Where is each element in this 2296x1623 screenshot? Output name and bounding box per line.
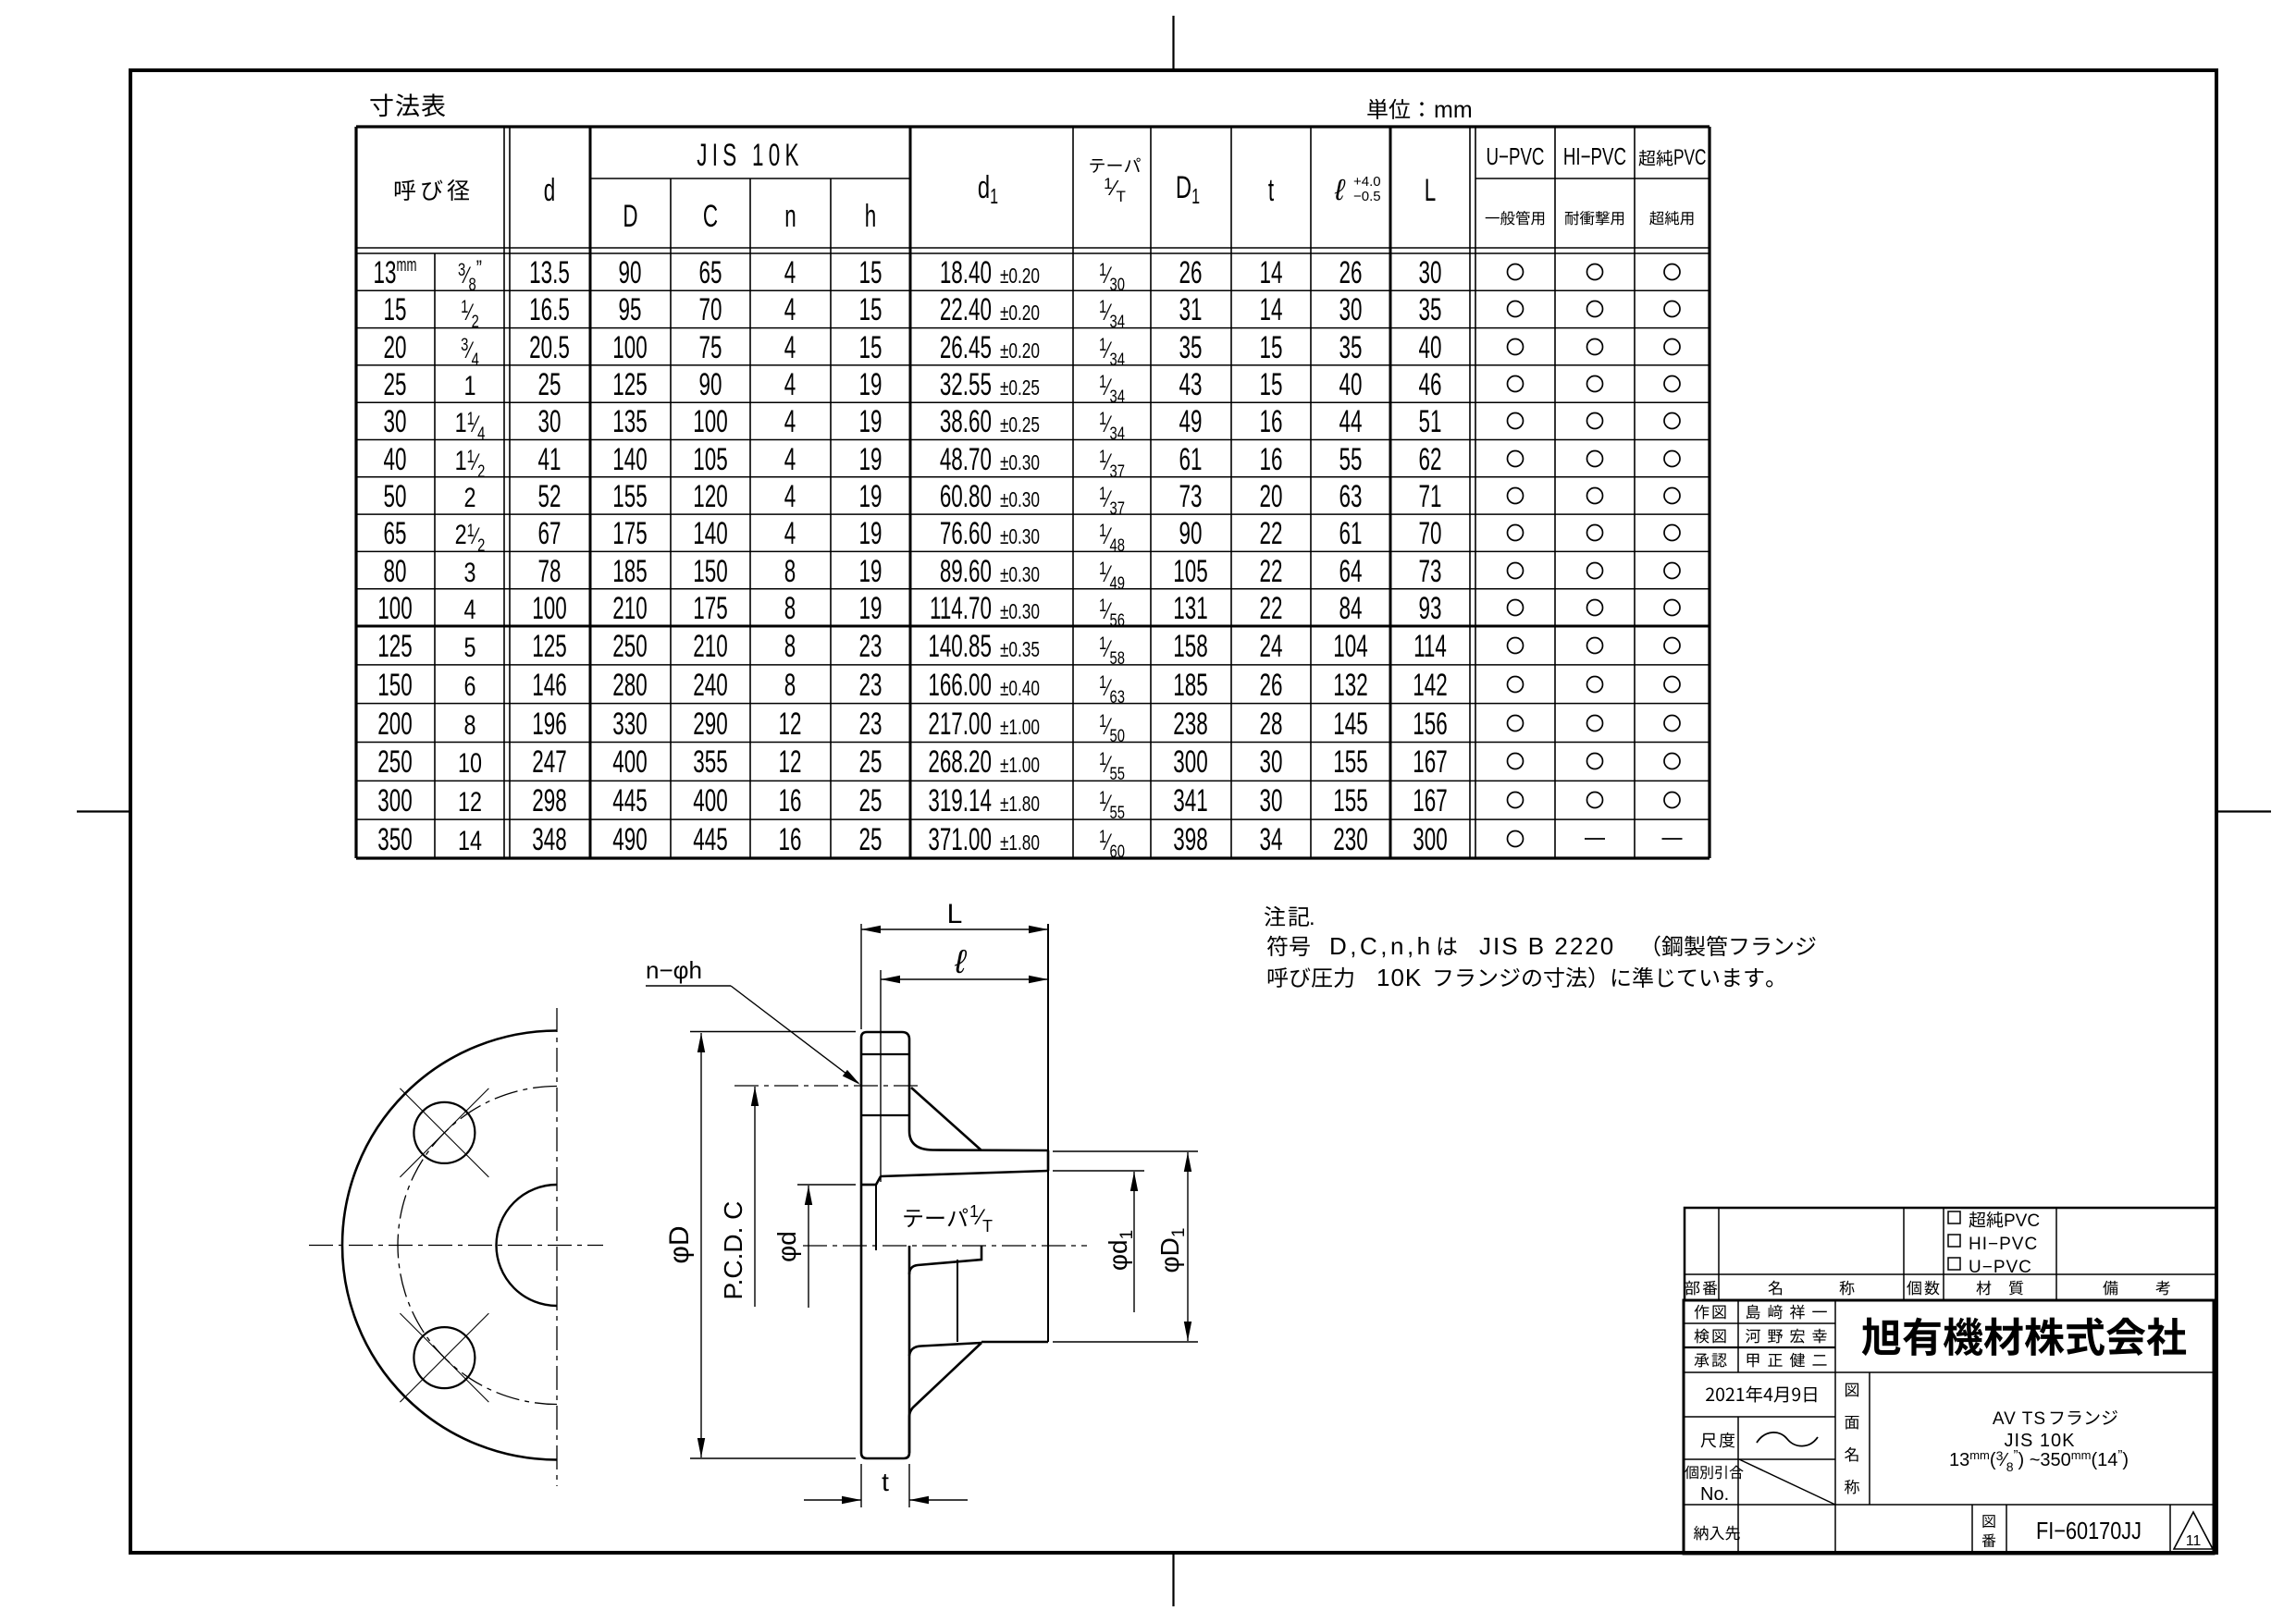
svg-text:90: 90 — [619, 255, 642, 290]
svg-text:25: 25 — [859, 783, 883, 818]
svg-text:35: 35 — [1339, 330, 1363, 365]
svg-text:FI−60170JJ: FI−60170JJ — [2036, 1517, 2142, 1544]
svg-text:±0.20: ±0.20 — [1000, 340, 1040, 363]
svg-text:70: 70 — [1419, 516, 1442, 551]
svg-text:ℓ: ℓ — [1334, 173, 1346, 206]
svg-text:±1.80: ±1.80 — [1000, 832, 1040, 855]
svg-text:±0.20: ±0.20 — [1000, 265, 1040, 289]
svg-text:280: 280 — [612, 668, 647, 703]
svg-text:±0.30: ±0.30 — [1000, 526, 1040, 549]
svg-text:15: 15 — [1260, 330, 1283, 365]
svg-text:230: 230 — [1333, 822, 1367, 857]
svg-text:22: 22 — [1260, 516, 1283, 551]
svg-text:±0.25: ±0.25 — [1000, 414, 1040, 437]
svg-text:247: 247 — [532, 744, 566, 780]
svg-text:1⁄48: 1⁄48 — [1099, 521, 1125, 555]
svg-text:40: 40 — [384, 442, 407, 477]
svg-text:No.: No. — [1700, 1484, 1729, 1505]
svg-text:4: 4 — [784, 516, 796, 551]
svg-text:8: 8 — [784, 591, 796, 626]
svg-text:3⁄8”: 3⁄8” — [458, 256, 482, 295]
svg-text:80: 80 — [384, 554, 407, 589]
svg-text:20.5: 20.5 — [529, 330, 570, 365]
svg-text:4: 4 — [784, 330, 796, 365]
svg-text:±0.20: ±0.20 — [1000, 302, 1040, 326]
svg-text:16: 16 — [778, 822, 801, 857]
svg-text:76.60: 76.60 — [940, 516, 992, 551]
svg-text:d: d — [544, 173, 555, 208]
svg-text:445: 445 — [693, 822, 727, 857]
svg-text:20: 20 — [1260, 479, 1283, 514]
svg-text:114: 114 — [1413, 629, 1447, 664]
svg-text:34: 34 — [1260, 822, 1283, 857]
svg-text:12: 12 — [778, 744, 801, 780]
svg-text:15: 15 — [859, 330, 883, 365]
svg-text:mm: mm — [1434, 97, 1473, 123]
svg-text:1⁄60: 1⁄60 — [1099, 827, 1125, 861]
svg-text:185: 185 — [1173, 668, 1207, 703]
svg-text:30: 30 — [538, 404, 562, 439]
svg-text:11⁄2: 11⁄2 — [455, 445, 486, 481]
svg-text:89.60: 89.60 — [940, 554, 992, 589]
svg-text:4: 4 — [464, 594, 476, 624]
svg-text:61: 61 — [1179, 442, 1203, 477]
svg-text:1⁄34: 1⁄34 — [1099, 297, 1125, 331]
svg-text:t: t — [882, 1468, 889, 1496]
svg-text:71: 71 — [1419, 479, 1442, 514]
svg-text:290: 290 — [693, 707, 727, 742]
svg-text:73: 73 — [1419, 554, 1442, 589]
svg-text:490: 490 — [612, 822, 647, 857]
svg-text:341: 341 — [1173, 783, 1207, 818]
svg-text:.: . — [1309, 905, 1315, 930]
svg-text:140: 140 — [612, 442, 647, 477]
svg-text:h: h — [865, 199, 876, 234]
svg-text:HI−PVC: HI−PVC — [1563, 142, 1626, 170]
svg-text:146: 146 — [532, 668, 566, 703]
svg-text:D,C,n,h: D,C,n,h — [1329, 932, 1434, 960]
svg-text:U−PVC: U−PVC — [1487, 142, 1545, 170]
svg-text:166.00: 166.00 — [928, 668, 992, 703]
svg-text:φD: φD — [664, 1225, 695, 1263]
svg-text:65: 65 — [698, 255, 722, 290]
svg-text:60.80: 60.80 — [940, 479, 992, 514]
svg-text:4: 4 — [784, 367, 796, 402]
svg-text:11: 11 — [2186, 1533, 2202, 1549]
svg-text:1: 1 — [464, 370, 476, 400]
svg-text:ℓ: ℓ — [954, 942, 968, 980]
svg-text:22: 22 — [1260, 554, 1283, 589]
svg-text:43: 43 — [1179, 367, 1203, 402]
svg-text:51: 51 — [1419, 404, 1442, 439]
svg-text:400: 400 — [612, 744, 647, 780]
svg-text:30: 30 — [1260, 744, 1283, 780]
svg-text:1⁄50: 1⁄50 — [1099, 711, 1125, 745]
svg-text:48.70: 48.70 — [940, 442, 992, 477]
svg-text:4: 4 — [784, 255, 796, 290]
svg-text:73: 73 — [1179, 479, 1203, 514]
svg-text:55: 55 — [1339, 442, 1363, 477]
svg-text:22: 22 — [1260, 591, 1283, 626]
svg-text:PVC: PVC — [2004, 1211, 2040, 1231]
svg-text:±1.00: ±1.00 — [1000, 717, 1040, 740]
svg-text:15: 15 — [859, 255, 883, 290]
svg-text:1⁄34: 1⁄34 — [1099, 409, 1125, 443]
svg-text:140.85: 140.85 — [928, 629, 992, 664]
svg-text:28: 28 — [1260, 707, 1283, 742]
svg-text:8: 8 — [784, 554, 796, 589]
svg-text:142: 142 — [1413, 668, 1447, 703]
svg-text:155: 155 — [1333, 744, 1367, 780]
svg-text:348: 348 — [532, 822, 566, 857]
svg-text:1⁄T: 1⁄T — [969, 1202, 993, 1236]
svg-text:22.40: 22.40 — [940, 292, 992, 327]
svg-text:10: 10 — [458, 747, 482, 778]
svg-text:156: 156 — [1413, 707, 1447, 742]
svg-text:75: 75 — [698, 330, 722, 365]
svg-text:1⁄34: 1⁄34 — [1099, 335, 1125, 369]
svg-text:n−φh: n−φh — [646, 956, 702, 984]
svg-text:35: 35 — [1179, 330, 1203, 365]
svg-text:1⁄34: 1⁄34 — [1099, 372, 1125, 406]
svg-text:44: 44 — [1339, 404, 1363, 439]
svg-text:HI−PVC: HI−PVC — [1969, 1235, 2038, 1254]
svg-text:13.5: 13.5 — [529, 255, 570, 290]
svg-text:145: 145 — [1333, 707, 1367, 742]
svg-text:90: 90 — [1179, 516, 1203, 551]
svg-text:26: 26 — [1179, 255, 1203, 290]
svg-text:U−PVC: U−PVC — [1969, 1258, 2032, 1277]
svg-text:16: 16 — [778, 783, 801, 818]
svg-text:140: 140 — [693, 516, 727, 551]
svg-text:6: 6 — [464, 670, 476, 701]
svg-text:298: 298 — [532, 783, 566, 818]
svg-text:63: 63 — [1339, 479, 1363, 514]
svg-text:158: 158 — [1173, 629, 1207, 664]
svg-text:217.00: 217.00 — [928, 707, 992, 742]
svg-text:238: 238 — [1173, 707, 1207, 742]
svg-text:12: 12 — [458, 786, 482, 817]
svg-text:4: 4 — [784, 292, 796, 327]
svg-text:31: 31 — [1179, 292, 1203, 327]
svg-text:±0.30: ±0.30 — [1000, 489, 1040, 512]
svg-text:200: 200 — [377, 707, 412, 742]
svg-text:L: L — [1425, 173, 1436, 208]
svg-text:19: 19 — [859, 442, 883, 477]
svg-text:2: 2 — [464, 482, 476, 512]
svg-text:1⁄T: 1⁄T — [1104, 175, 1126, 205]
svg-text:30: 30 — [384, 404, 407, 439]
svg-text:12: 12 — [778, 707, 801, 742]
svg-text:25: 25 — [859, 822, 883, 857]
svg-text:1⁄49: 1⁄49 — [1099, 559, 1125, 593]
svg-text:30: 30 — [1260, 783, 1283, 818]
svg-text:100: 100 — [612, 330, 647, 365]
svg-text:23: 23 — [859, 629, 883, 664]
svg-text:32.55: 32.55 — [940, 367, 992, 402]
svg-text:210: 210 — [612, 591, 647, 626]
svg-text:50: 50 — [384, 479, 407, 514]
svg-text:24: 24 — [1260, 629, 1283, 664]
svg-text:355: 355 — [693, 744, 727, 780]
svg-text:3: 3 — [464, 557, 476, 587]
svg-text:−0.5: −0.5 — [1353, 189, 1381, 204]
svg-text:15: 15 — [1260, 367, 1283, 402]
svg-text:C: C — [703, 199, 718, 234]
svg-text:155: 155 — [1333, 783, 1367, 818]
svg-text:175: 175 — [612, 516, 647, 551]
svg-text:25: 25 — [384, 367, 407, 402]
svg-text:100: 100 — [693, 404, 727, 439]
svg-text:15: 15 — [859, 292, 883, 327]
svg-text:16: 16 — [1260, 404, 1283, 439]
svg-text:52: 52 — [538, 479, 562, 514]
svg-text:AV TS: AV TS — [1993, 1409, 2046, 1429]
svg-text:±0.30: ±0.30 — [1000, 601, 1040, 624]
svg-text:±0.30: ±0.30 — [1000, 452, 1040, 475]
svg-text:65: 65 — [384, 516, 407, 551]
svg-text:26.45: 26.45 — [940, 330, 992, 365]
svg-text:40: 40 — [1419, 330, 1442, 365]
svg-text:1⁄58: 1⁄58 — [1099, 633, 1125, 668]
svg-text:±0.25: ±0.25 — [1000, 377, 1040, 400]
svg-text:P.C.D. C: P.C.D. C — [719, 1201, 747, 1300]
svg-text:240: 240 — [693, 668, 727, 703]
svg-text:445: 445 — [612, 783, 647, 818]
svg-text:125: 125 — [532, 629, 566, 664]
svg-text:8: 8 — [784, 668, 796, 703]
svg-text:18.40: 18.40 — [940, 255, 992, 290]
svg-text:114.70: 114.70 — [930, 591, 992, 626]
svg-text:PVC: PVC — [1673, 145, 1707, 169]
svg-text:19: 19 — [859, 591, 883, 626]
svg-text:135: 135 — [612, 404, 647, 439]
svg-text:150: 150 — [377, 668, 412, 703]
svg-text:4: 4 — [784, 404, 796, 439]
svg-text:23: 23 — [859, 707, 883, 742]
svg-text:±0.35: ±0.35 — [1000, 639, 1040, 662]
svg-text:125: 125 — [377, 629, 412, 664]
svg-text:14: 14 — [458, 825, 482, 855]
svg-text:t: t — [1268, 173, 1274, 208]
svg-text:41: 41 — [538, 442, 562, 477]
svg-text:4: 4 — [784, 479, 796, 514]
svg-text:d1: d1 — [978, 170, 998, 209]
svg-text:300: 300 — [1173, 744, 1207, 780]
svg-text:49: 49 — [1179, 404, 1203, 439]
svg-text:400: 400 — [693, 783, 727, 818]
svg-text:16: 16 — [1260, 442, 1283, 477]
svg-text:±1.00: ±1.00 — [1000, 755, 1040, 778]
svg-text:10K: 10K — [1376, 964, 1422, 991]
svg-text:19: 19 — [859, 554, 883, 589]
svg-text:25: 25 — [538, 367, 562, 402]
svg-text:1⁄55: 1⁄55 — [1099, 788, 1125, 822]
svg-text:300: 300 — [377, 783, 412, 818]
svg-text:26: 26 — [1260, 668, 1283, 703]
svg-text:L: L — [947, 899, 963, 929]
svg-text:155: 155 — [612, 479, 647, 514]
svg-text:30: 30 — [1419, 255, 1442, 290]
svg-text:150: 150 — [693, 554, 727, 589]
svg-text:19: 19 — [859, 404, 883, 439]
svg-text:210: 210 — [693, 629, 727, 664]
svg-text:185: 185 — [612, 554, 647, 589]
svg-text:250: 250 — [612, 629, 647, 664]
svg-text:±0.30: ±0.30 — [1000, 564, 1040, 587]
svg-text:40: 40 — [1339, 367, 1363, 402]
svg-text:φD1: φD1 — [1155, 1228, 1189, 1273]
svg-text:φd: φd — [772, 1231, 801, 1262]
svg-text:14: 14 — [1260, 292, 1283, 327]
svg-text:D1: D1 — [1176, 170, 1200, 209]
svg-text:100: 100 — [532, 591, 566, 626]
svg-text:350: 350 — [377, 822, 412, 857]
svg-text:84: 84 — [1339, 591, 1363, 626]
svg-text:90: 90 — [698, 367, 722, 402]
svg-text:4: 4 — [784, 442, 796, 477]
svg-text:5: 5 — [464, 632, 476, 662]
svg-text:105: 105 — [693, 442, 727, 477]
svg-text:300: 300 — [1413, 822, 1447, 857]
svg-text:1⁄63: 1⁄63 — [1099, 672, 1125, 707]
svg-text:70: 70 — [698, 292, 722, 327]
svg-text:167: 167 — [1413, 744, 1447, 780]
svg-text:319.14: 319.14 — [928, 783, 992, 818]
svg-text:131: 131 — [1173, 591, 1207, 626]
svg-text:25: 25 — [859, 744, 883, 780]
svg-text:14: 14 — [1260, 255, 1283, 290]
svg-text:167: 167 — [1413, 783, 1447, 818]
svg-text:+4.0: +4.0 — [1353, 174, 1381, 190]
svg-text:38.60: 38.60 — [940, 404, 992, 439]
svg-text:100: 100 — [377, 591, 412, 626]
svg-text:D: D — [623, 199, 637, 234]
svg-text:46: 46 — [1419, 367, 1442, 402]
svg-text:64: 64 — [1339, 554, 1363, 589]
svg-text:23: 23 — [859, 668, 883, 703]
svg-text:16.5: 16.5 — [529, 292, 570, 327]
svg-text:105: 105 — [1173, 554, 1207, 589]
svg-text:26: 26 — [1339, 255, 1363, 290]
svg-text:175: 175 — [693, 591, 727, 626]
svg-text:21⁄2: 21⁄2 — [455, 519, 486, 555]
svg-text:1⁄37: 1⁄37 — [1099, 447, 1125, 481]
svg-text:120: 120 — [693, 479, 727, 514]
svg-text:15: 15 — [384, 292, 407, 327]
svg-text:125: 125 — [612, 367, 647, 402]
svg-text:JIS 10K: JIS 10K — [697, 138, 804, 173]
svg-text:330: 330 — [612, 707, 647, 742]
svg-text:30: 30 — [1339, 292, 1363, 327]
svg-text:95: 95 — [619, 292, 642, 327]
svg-text:13mm: 13mm — [374, 254, 417, 290]
svg-text:φd1: φd1 — [1104, 1230, 1137, 1271]
svg-text:JIS B 2220: JIS B 2220 — [1479, 932, 1615, 960]
svg-text:±1.80: ±1.80 — [1000, 793, 1040, 817]
svg-text:398: 398 — [1173, 822, 1207, 857]
svg-text:±0.40: ±0.40 — [1000, 678, 1040, 701]
svg-text:78: 78 — [538, 554, 562, 589]
svg-text:62: 62 — [1419, 442, 1442, 477]
svg-text:8: 8 — [464, 709, 476, 740]
svg-text:11⁄4: 11⁄4 — [455, 407, 486, 443]
svg-text:61: 61 — [1339, 516, 1363, 551]
svg-text:196: 196 — [532, 707, 566, 742]
svg-text:371.00: 371.00 — [928, 822, 992, 857]
svg-text:3⁄4: 3⁄4 — [461, 335, 479, 369]
svg-text:13mm(3⁄8”) ~350mm(14”): 13mm(3⁄8”) ~350mm(14”) — [1949, 1447, 2129, 1474]
svg-text:1⁄37: 1⁄37 — [1099, 484, 1125, 518]
svg-text:67: 67 — [538, 516, 562, 551]
svg-text:35: 35 — [1419, 292, 1442, 327]
svg-text:19: 19 — [859, 479, 883, 514]
svg-text:132: 132 — [1333, 668, 1367, 703]
svg-text:1⁄2: 1⁄2 — [461, 297, 479, 331]
svg-text:93: 93 — [1419, 591, 1442, 626]
svg-text:20: 20 — [384, 330, 407, 365]
svg-text:268.20: 268.20 — [928, 744, 992, 780]
svg-text:104: 104 — [1333, 629, 1367, 664]
svg-text:n: n — [784, 199, 796, 234]
svg-text:1⁄30: 1⁄30 — [1099, 260, 1125, 294]
svg-text:19: 19 — [859, 516, 883, 551]
svg-text:1⁄55: 1⁄55 — [1099, 749, 1125, 783]
svg-text:8: 8 — [784, 629, 796, 664]
svg-text:19: 19 — [859, 367, 883, 402]
svg-text:250: 250 — [377, 744, 412, 780]
